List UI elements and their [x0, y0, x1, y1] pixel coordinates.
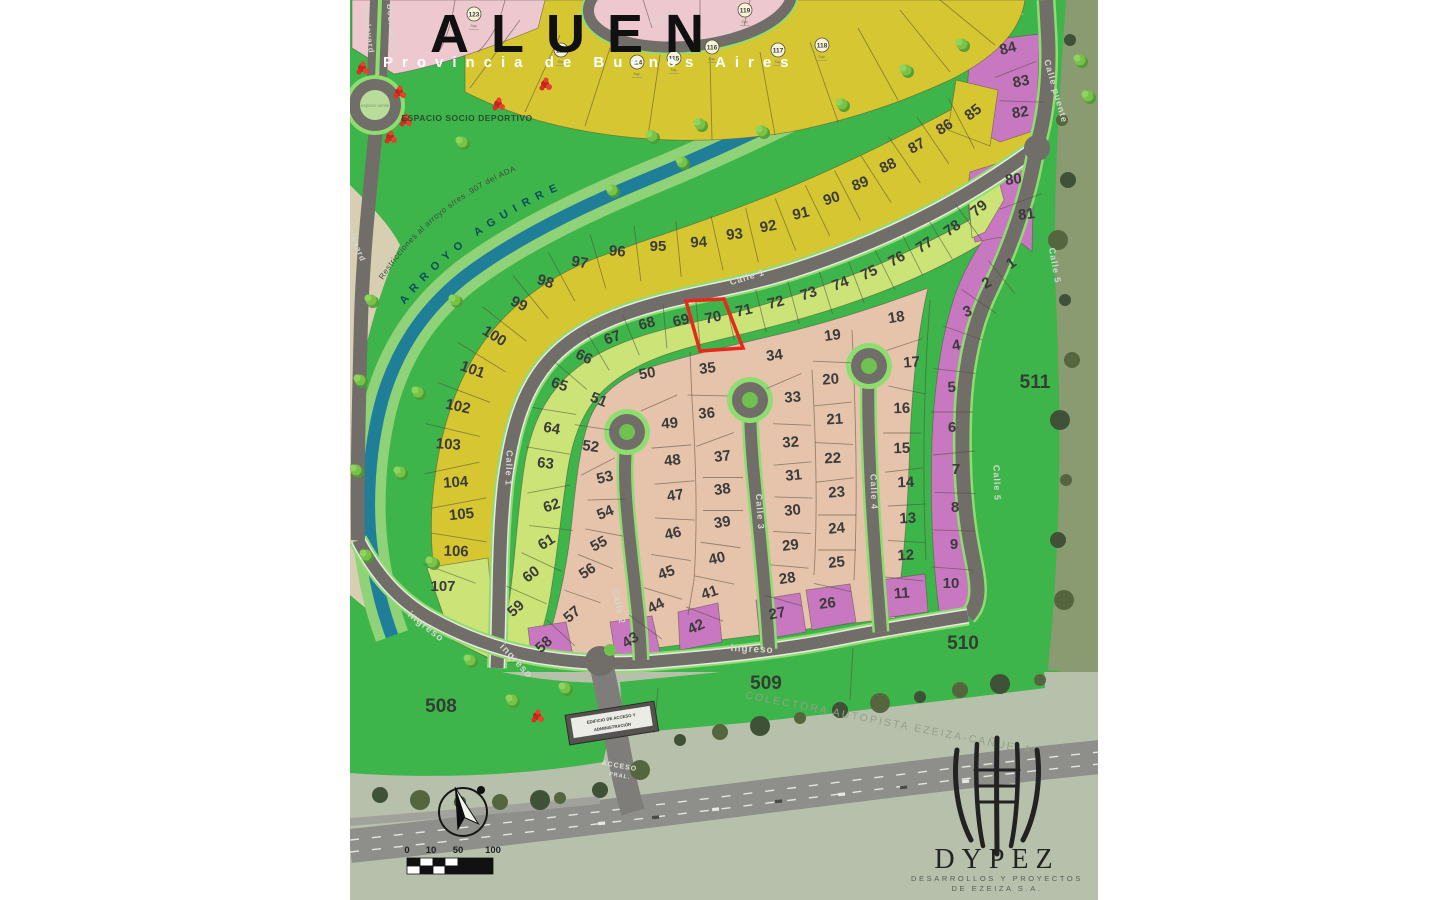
espacio-socio-deportivo-label: ESPACIO SOCIO DEPORTIVO — [401, 113, 532, 123]
tree-dark — [1050, 532, 1066, 548]
lot-label-32: 32 — [782, 433, 800, 451]
tree-dark — [674, 734, 686, 746]
lot-label-15: 15 — [893, 440, 910, 458]
lot-label-95: 95 — [650, 238, 667, 255]
lot-label-9: 9 — [950, 536, 958, 553]
lot-label-13: 13 — [899, 510, 917, 528]
lot-label-10: 10 — [943, 575, 960, 592]
lot-label-96: 96 — [608, 242, 626, 260]
dypez-sub-line2: DE EZEIZA S.A. — [952, 884, 1043, 893]
scale-tick-0: 0 — [404, 845, 409, 856]
green-area-label-510: 510 — [947, 633, 979, 654]
masterplan-page: espacio verde EDIFICIO DE ACCESO Y ADMIN… — [0, 0, 1440, 900]
lot-label-26: 26 — [818, 594, 837, 613]
lot-label-8: 8 — [951, 499, 959, 516]
lot-label-47: 47 — [666, 486, 685, 505]
bulb-calle-3 — [727, 377, 773, 423]
lot-label-48: 48 — [663, 451, 682, 470]
lot-label-14: 14 — [897, 474, 915, 492]
tree-dark — [1064, 352, 1080, 368]
lot-label-6: 6 — [948, 419, 956, 436]
lot-label-39: 39 — [713, 513, 732, 532]
vehicle — [598, 821, 605, 825]
tree-dark — [1064, 34, 1076, 46]
lot-label-63: 63 — [536, 454, 554, 473]
tree-dark — [410, 790, 430, 810]
aluen-masterplan-map: espacio verde EDIFICIO DE ACCESO Y ADMIN… — [0, 0, 1440, 900]
lot-label-104: 104 — [443, 473, 470, 492]
lot-label-31: 31 — [785, 466, 803, 484]
lot-label-16: 16 — [893, 400, 910, 418]
lot-label-7: 7 — [952, 461, 960, 478]
lot-label-80: 80 — [1004, 170, 1023, 189]
tree-dark — [1060, 172, 1076, 188]
espacio-verde-label: espacio verde — [361, 103, 390, 108]
svg-text:118: 118 — [817, 42, 828, 49]
lot-label-35: 35 — [698, 359, 717, 378]
tree-dark — [952, 682, 968, 698]
green-area-label-508: 508 — [425, 696, 457, 717]
lot-label-28: 28 — [778, 569, 797, 588]
tree-dark — [1050, 410, 1070, 430]
scale-tick-100: 100 — [485, 845, 501, 856]
tree-dark — [914, 691, 926, 703]
lot-label-50: 50 — [638, 364, 657, 384]
vehicle — [900, 785, 907, 789]
dypez-sub-line1: DESARROLLOS Y PROYECTOS — [911, 874, 1083, 883]
vehicle — [712, 807, 719, 811]
green-area-label-511: 511 — [1020, 372, 1051, 393]
street-label-calle-4: Calle 4 — [868, 474, 879, 510]
street-label-calle-1: Calle 1 — [503, 450, 514, 486]
lot-label-93: 93 — [725, 225, 743, 244]
lot-label-94: 94 — [690, 234, 708, 252]
tree-dark — [990, 674, 1010, 694]
tree-dark — [1059, 294, 1071, 306]
entry-plaza-island — [604, 644, 616, 656]
lot-label-69: 69 — [671, 311, 691, 331]
tree-dark — [1060, 474, 1072, 486]
lot-label-52: 52 — [581, 437, 600, 456]
lot-label-34: 34 — [765, 346, 784, 365]
tree-dark — [1034, 674, 1046, 686]
bulb-calle-4 — [846, 343, 892, 389]
svg-text:Sup.: Sup. — [819, 55, 826, 59]
lot-label-25: 25 — [827, 553, 845, 572]
north-junction — [1024, 135, 1050, 161]
svg-text:Sup.: Sup. — [742, 20, 749, 24]
tree-dark — [554, 792, 566, 804]
lot-label-92: 92 — [759, 217, 778, 237]
tree-dark — [530, 790, 550, 810]
page-subtitle: Provincia de Buenos Aires — [383, 54, 798, 71]
lot-label-36: 36 — [698, 404, 716, 422]
lot-label-82: 82 — [1011, 103, 1030, 122]
lot-label-105: 105 — [448, 505, 475, 525]
scale-tick-10: 10 — [426, 845, 437, 856]
lot-label-49: 49 — [661, 414, 679, 432]
lot-label-83: 83 — [1011, 72, 1031, 92]
lot-label-22: 22 — [824, 450, 842, 468]
tree-dark — [1054, 590, 1074, 610]
lot-label-17: 17 — [903, 353, 921, 371]
lot-label-107: 107 — [430, 578, 455, 595]
lot-label-30: 30 — [783, 501, 801, 520]
lot-label-29: 29 — [781, 536, 800, 555]
scale-tick-50: 50 — [453, 845, 464, 856]
map-canvas: espacio verde EDIFICIO DE ACCESO Y ADMIN… — [341, 0, 1100, 900]
vehicle — [962, 779, 969, 783]
lot-label-106: 106 — [443, 543, 469, 561]
tree-dark — [750, 716, 770, 736]
lot-label-23: 23 — [828, 483, 846, 501]
lot-label-38: 38 — [713, 480, 732, 499]
lot-label-33: 33 — [784, 388, 802, 406]
street-label-ingreso: ingreso — [730, 643, 774, 656]
tree-dark — [794, 712, 806, 724]
lot-label-24: 24 — [828, 519, 847, 537]
street-label-calle-5: Calle 5 — [991, 465, 1002, 501]
roundabout: espacio verde — [345, 75, 405, 135]
svg-text:119: 119 — [740, 7, 751, 14]
lot-label-5: 5 — [947, 379, 957, 397]
svg-text:Sup.: Sup. — [634, 72, 641, 76]
bulb-calle-2 — [604, 409, 650, 455]
lot-label-18: 18 — [887, 308, 906, 327]
tree-dark — [492, 794, 508, 810]
vehicle — [652, 815, 659, 819]
lot-label-21: 21 — [826, 411, 844, 429]
tree-dark — [712, 724, 728, 740]
vehicle — [838, 792, 845, 796]
lot-label-70-highlighted: 70 — [703, 308, 723, 328]
vehicle — [775, 799, 782, 803]
lot-label-37: 37 — [713, 447, 732, 466]
dypez-brand-text: DYPEZ — [934, 844, 1059, 875]
tree-dark — [592, 782, 608, 798]
lot-label-97: 97 — [570, 253, 589, 273]
lot-label-20: 20 — [822, 370, 840, 388]
lot-label-27: 27 — [767, 604, 787, 624]
lot-label-12: 12 — [897, 547, 915, 565]
lot-label-103: 103 — [435, 435, 461, 454]
tree-dark — [372, 787, 388, 803]
lot-label-19: 19 — [823, 326, 842, 345]
lot-label-81: 81 — [1017, 205, 1036, 224]
lot-label-11: 11 — [893, 584, 910, 602]
tree-dark — [870, 693, 890, 713]
